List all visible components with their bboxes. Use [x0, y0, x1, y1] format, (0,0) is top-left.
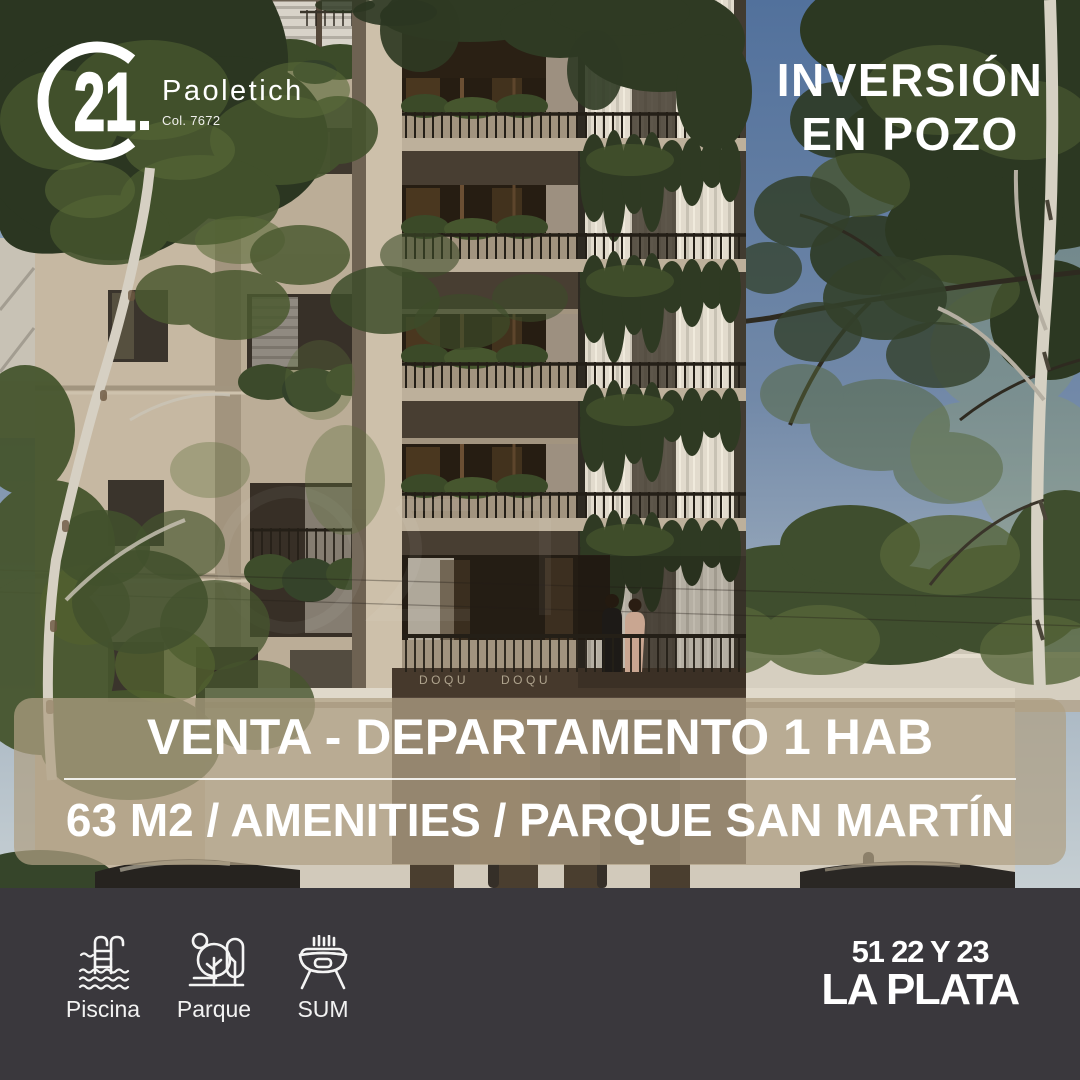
svg-text:Paoletich: Paoletich	[162, 75, 304, 107]
svg-text:Col. 7672: Col. 7672	[162, 113, 220, 128]
svg-text:DOQU: DOQU	[501, 673, 551, 687]
svg-text:21: 21	[74, 57, 136, 148]
svg-text:DOQU: DOQU	[419, 673, 469, 687]
